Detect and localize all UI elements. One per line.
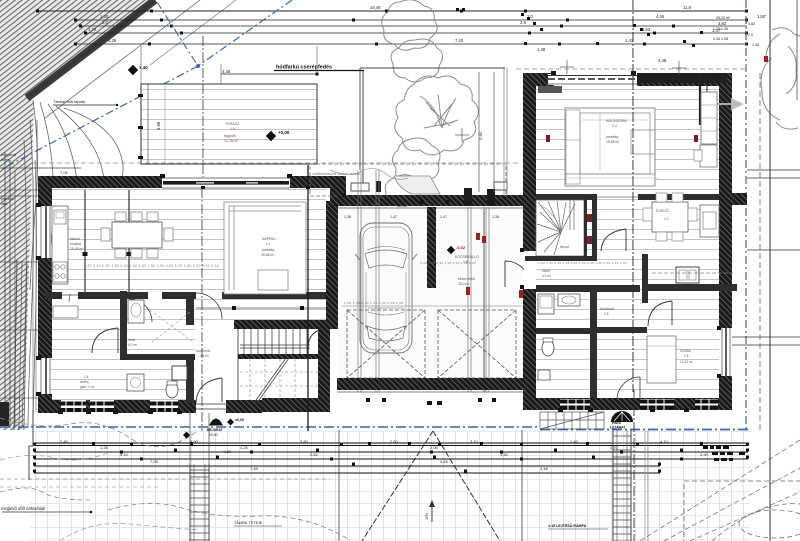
svg-text:3,48: 3,48	[540, 466, 549, 471]
svg-text:4,25: 4,25	[240, 445, 249, 450]
svg-text:parketta: parketta	[262, 248, 274, 252]
svg-text:hódfarkú cserépfedés: hódfarkú cserépfedés	[276, 65, 332, 71]
svg-text:1,25: 1,25	[100, 445, 109, 450]
svg-text:1,47: 1,47	[440, 215, 447, 219]
svg-text:28,4 m²: 28,4 m²	[458, 282, 470, 286]
svg-text:étkező: étkező	[70, 237, 80, 241]
svg-text:3,10: 3,10	[470, 439, 479, 444]
svg-text:HÁLÓSZOBA: HÁLÓSZOBA	[606, 118, 627, 123]
svg-text:2,52: 2,52	[310, 452, 319, 457]
svg-text:3,80: 3,80	[300, 439, 309, 444]
svg-text:7,40: 7,40	[139, 65, 148, 70]
svg-text:konyha: konyha	[70, 242, 81, 246]
svg-text:±0,00: ±0,00	[209, 433, 218, 437]
svg-text:4,2 m²: 4,2 m²	[542, 274, 551, 278]
svg-text:lépcső: lépcső	[560, 245, 569, 249]
svg-text:1:15 LEJTÉSŰ RÁMPA: 1:15 LEJTÉSŰ RÁMPA	[548, 523, 587, 528]
svg-text:parketta: parketta	[606, 135, 618, 139]
svg-text:szoba: szoba	[80, 380, 89, 384]
svg-text:LEJÁRAT: LEJÁRAT	[610, 425, 626, 430]
svg-text:2,05: 2,05	[430, 445, 439, 450]
svg-text:5,90: 5,90	[190, 439, 199, 444]
svg-text:-0,02: -0,02	[456, 245, 466, 250]
svg-text:25,68 m²: 25,68 m²	[261, 253, 275, 257]
svg-text:2.4: 2.4	[612, 124, 617, 128]
svg-text:közlekedő: közlekedő	[196, 349, 211, 353]
svg-text:7,43: 7,43	[455, 38, 464, 43]
svg-text:tám.: tám.	[1, 202, 8, 206]
svg-text:2,0: 2,0	[102, 20, 108, 25]
svg-text:KOCSIBEÁLLÓ: KOCSIBEÁLLÓ	[455, 254, 479, 259]
svg-text:0,60 1,20 0,45 2,38 0,60 1,20: 0,60 1,20 0,45 2,38 0,60 1,20 0,45 1,08 …	[538, 261, 627, 265]
svg-text:beton térkő: beton térkő	[458, 277, 475, 281]
svg-text:0,90 0,60 0,90 1,80 0,60 0,90: 0,90 0,60 0,90 1,80 0,60 0,90 0,60 1,80 …	[84, 264, 219, 268]
svg-text:7,06: 7,06	[60, 170, 69, 175]
svg-text:fürdő: fürdő	[128, 338, 135, 342]
svg-text:6,2 m²: 6,2 m²	[128, 343, 137, 347]
svg-text:4,6 m²: 4,6 m²	[200, 354, 209, 358]
svg-text:+0,00: +0,00	[278, 130, 290, 135]
svg-text:NAPPALI: NAPPALI	[262, 237, 276, 241]
svg-text:1,43: 1,43	[625, 38, 634, 43]
svg-text:gard. 2 m²: gard. 2 m²	[80, 385, 95, 389]
svg-text:15,48 m²: 15,48 m²	[70, 247, 84, 251]
svg-text:1,47: 1,47	[390, 215, 397, 219]
svg-text:2.5: 2.5	[684, 354, 689, 358]
svg-text:TÁMFAL TETEJE: TÁMFAL TETEJE	[234, 521, 263, 525]
svg-text:2,50: 2,50	[390, 439, 399, 444]
svg-text:1,08 2,38 0,30 1,48 0,30: 1,08 2,38 0,30 1,48 0,30 2,08 1,08	[344, 301, 403, 305]
svg-text:1,38: 1,38	[492, 215, 499, 219]
svg-text:1.9: 1.9	[463, 260, 468, 264]
svg-text:11,9: 11,9	[683, 5, 692, 10]
svg-text:5,48: 5,48	[478, 131, 483, 140]
svg-text:2,90: 2,90	[700, 452, 709, 457]
svg-text:1.8: 1.8	[230, 127, 235, 131]
svg-text:19,46: 19,46	[370, 5, 381, 10]
svg-text:2,45: 2,45	[60, 439, 69, 444]
svg-text:4,45: 4,45	[656, 14, 665, 19]
svg-text:ÉTKEZŐ: ÉTKEZŐ	[656, 208, 669, 213]
svg-text:7,05: 7,05	[150, 459, 159, 464]
svg-text:12,42 m²: 12,42 m²	[680, 360, 693, 364]
svg-text:1,48: 1,48	[752, 43, 759, 47]
svg-text:1,63: 1,63	[642, 27, 651, 32]
svg-text:2.3: 2.3	[604, 312, 609, 316]
svg-text:1,50°: 1,50°	[757, 14, 767, 19]
svg-text:2.2: 2.2	[664, 217, 669, 221]
svg-text:3,82: 3,82	[718, 21, 727, 26]
svg-text:pincefal: pincefal	[1, 197, 14, 201]
svg-text:1,70: 1,70	[88, 27, 97, 32]
svg-text:1,50: 1,50	[100, 14, 109, 19]
svg-text:15%: 15%	[425, 512, 429, 520]
svg-text:±0,00: ±0,00	[235, 418, 244, 422]
svg-text:4,10: 4,10	[660, 439, 669, 444]
svg-text:3,82: 3,82	[748, 22, 755, 26]
svg-text:3,98: 3,98	[156, 121, 161, 130]
svg-text:3,10: 3,10	[120, 452, 129, 457]
svg-text:4,48: 4,48	[222, 69, 231, 74]
svg-text:PINCE: PINCE	[612, 421, 621, 425]
svg-text:13,28 m²: 13,28 m²	[224, 139, 239, 143]
svg-text:BEJÁRAT: BEJÁRAT	[207, 427, 224, 432]
svg-text:15,68 m²: 15,68 m²	[606, 140, 620, 144]
svg-text:1,48: 1,48	[537, 47, 546, 52]
svg-text:közlekedő: közlekedő	[600, 307, 615, 311]
svg-text:+1,50: +1,50	[222, 450, 231, 454]
svg-text:Támfal tető támfal: Támfal tető támfal	[53, 99, 85, 104]
svg-text:SZOBA: SZOBA	[680, 349, 692, 353]
svg-text:2,9: 2,9	[520, 20, 526, 25]
svg-text:4,48: 4,48	[658, 58, 667, 63]
svg-text:7,48: 7,48	[250, 466, 259, 471]
svg-text:2,9: 2,9	[748, 33, 753, 37]
svg-text:előtér: előtér	[542, 269, 551, 273]
svg-text:1,38: 1,38	[344, 215, 351, 219]
svg-text:1,52: 1,52	[500, 452, 509, 457]
svg-text:1,20 1,45: 1,20 1,45	[713, 27, 728, 31]
svg-text:4,45: 4,45	[440, 459, 449, 464]
svg-text:TERASZ: TERASZ	[225, 122, 240, 126]
svg-text:2,0: 2,0	[527, 14, 533, 19]
svg-text:1,45: 1,45	[570, 439, 579, 444]
svg-text:1.1: 1.1	[266, 242, 271, 246]
svg-text:0,45 1,08: 0,45 1,08	[713, 37, 728, 41]
svg-text:fagyálló: fagyálló	[224, 134, 236, 138]
svg-text:25,20 m²: 25,20 m²	[716, 16, 731, 20]
svg-text:1.4: 1.4	[84, 375, 89, 379]
svg-text:meglévő dőlt sziklafalak: meglévő dőlt sziklafalak	[1, 506, 46, 511]
svg-text:4,36: 4,36	[108, 38, 117, 43]
svg-text:terep: terep	[1, 157, 11, 162]
